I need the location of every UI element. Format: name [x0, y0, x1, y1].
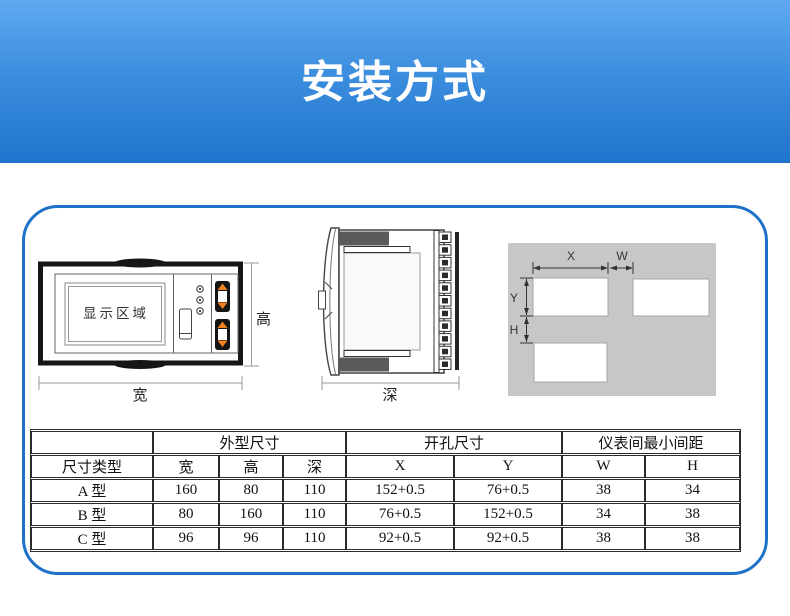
cutout-hole [533, 278, 608, 316]
cell: 110 [283, 503, 346, 526]
table-group-header-row: 外型尺寸 开孔尺寸 仪表间最小间距 [31, 431, 740, 454]
table-row-type-a: A 型 160 80 110 152+0.5 76+0.5 38 34 [31, 479, 740, 502]
cell: 160 [219, 503, 283, 526]
display-area-label: 显示区域 [83, 306, 149, 321]
cell: 92+0.5 [346, 527, 454, 550]
cell: 80 [219, 479, 283, 502]
title-banner: 安装方式 [0, 0, 790, 163]
content-panel: 显示区域 [22, 205, 768, 575]
cell: 80 [153, 503, 219, 526]
cutout-hole [633, 279, 709, 316]
screw-icons [197, 286, 203, 314]
cell: 34 [645, 479, 740, 502]
table-row-type-b: B 型 80 160 110 76+0.5 152+0.5 34 38 [31, 503, 740, 526]
updown-button-icon [215, 281, 230, 312]
height-label: 高 [256, 311, 271, 328]
installation-diagrams: 显示区域 [22, 205, 768, 433]
mounting-clip-bottom [114, 360, 166, 369]
depth-label: 深 [382, 387, 397, 404]
cell: 38 [562, 479, 645, 502]
col-header: X [346, 455, 454, 478]
side-view-diagram: 深 [319, 228, 460, 404]
col-header: W [562, 455, 645, 478]
col-header: H [645, 455, 740, 478]
cell: 34 [562, 503, 645, 526]
cell: 96 [219, 527, 283, 550]
w-label: W [616, 249, 628, 263]
group-header-min-spacing: 仪表间最小间距 [562, 431, 740, 454]
cell: 96 [153, 527, 219, 550]
panel-cutout-diagram: X W Y H [508, 243, 716, 396]
clamp-top [339, 232, 389, 246]
cell: 38 [562, 527, 645, 550]
x-label: X [567, 249, 575, 263]
cell: 110 [283, 479, 346, 502]
table-row-type-c: C 型 96 96 110 92+0.5 92+0.5 38 38 [31, 527, 740, 550]
table-column-header-row: 尺寸类型 宽 高 深 X Y W H [31, 455, 740, 478]
y-label: Y [510, 291, 518, 305]
cell: 76+0.5 [454, 479, 562, 502]
col-header: 高 [219, 455, 283, 478]
h-label: H [510, 323, 519, 337]
clamp-bottom [339, 358, 389, 372]
cell: 160 [153, 479, 219, 502]
cell: 38 [645, 527, 740, 550]
group-header-cutout-size: 开孔尺寸 [346, 431, 562, 454]
col-header: 尺寸类型 [31, 455, 153, 478]
updown-button-icon [215, 319, 230, 350]
cell: 110 [283, 527, 346, 550]
terminal-strip [434, 231, 459, 373]
front-view-diagram: 显示区域 [39, 259, 271, 405]
dimensions-table: 外型尺寸 开孔尺寸 仪表间最小间距 尺寸类型 宽 高 深 X Y W H A 型… [30, 429, 741, 552]
cell: B 型 [31, 503, 153, 526]
page-title: 安装方式 [0, 0, 790, 110]
col-header: 宽 [153, 455, 219, 478]
col-header: Y [454, 455, 562, 478]
cell: 92+0.5 [454, 527, 562, 550]
width-label: 宽 [132, 387, 147, 404]
cell: A 型 [31, 479, 153, 502]
col-header: 深 [283, 455, 346, 478]
group-header-outline-size: 外型尺寸 [153, 431, 346, 454]
empty-cell [31, 431, 153, 454]
cutout-hole [534, 343, 607, 382]
cell: 76+0.5 [346, 503, 454, 526]
cell: 152+0.5 [346, 479, 454, 502]
mounting-clip-top [114, 259, 166, 268]
cell: C 型 [31, 527, 153, 550]
cell: 38 [645, 503, 740, 526]
cell: 152+0.5 [454, 503, 562, 526]
